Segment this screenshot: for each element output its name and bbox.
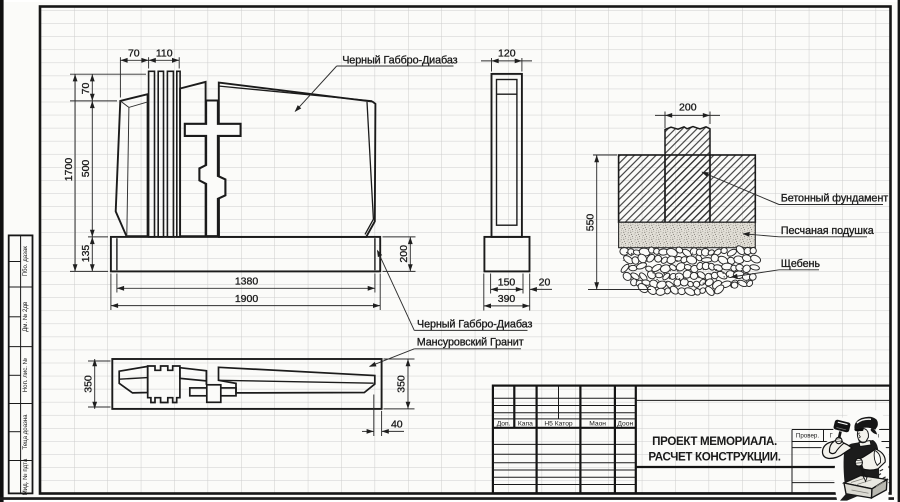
svg-text:Щебень: Щебень [781,258,821,270]
svg-text:20: 20 [539,276,551,288]
svg-text:Песчаная подушка: Песчаная подушка [781,225,874,237]
svg-text:500: 500 [80,160,92,178]
svg-text:1700: 1700 [63,158,75,182]
svg-text:Провер.: Провер. [796,433,819,440]
svg-text:550: 550 [584,214,596,232]
svg-text:350: 350 [396,375,408,393]
svg-text:150: 150 [498,276,516,288]
svg-text:Пбо. дазак: Пбо. дазак [22,246,29,277]
svg-text:Бетонный фундамент: Бетонный фундамент [781,193,888,205]
svg-text:350: 350 [82,375,94,393]
svg-text:Н5 Катор: Н5 Катор [544,420,573,427]
svg-text:Доон: Доон [617,420,633,427]
svg-text:Черный Габбро-Диабаз: Черный Габбро-Диабаз [342,55,457,67]
svg-text:ПРОЕКТ МЕМОРИАЛА.: ПРОЕКТ МЕМОРИАЛА. [652,435,777,448]
svg-text:РАСЧЕТ КОНСТРУКЦИИ.: РАСЧЕТ КОНСТРУКЦИИ. [648,451,780,464]
svg-text:Теца доазна: Теца доазна [22,414,29,450]
svg-text:Черный Габбро-Диабаз: Черный Габбро-Диабаз [417,318,532,330]
svg-text:1900: 1900 [235,293,259,305]
svg-text:Мансуровский Гранит: Мансуровский Гранит [417,337,524,349]
svg-text:200: 200 [398,245,410,263]
svg-text:Капа: Капа [518,420,533,427]
svg-text:Ноп. лис. №: Ноп. лис. № [22,358,29,392]
svg-text:1380: 1380 [235,276,259,288]
svg-text:Мид. № пдта: Мид. № пдта [22,458,29,495]
svg-text:70: 70 [128,47,140,59]
svg-text:200: 200 [679,102,697,114]
svg-text:Доп.: Доп. [497,420,511,427]
svg-text:Маон: Маон [589,420,606,427]
svg-text:40: 40 [391,418,403,430]
svg-text:Дм. № 2дв: Дм. № 2дв [22,302,29,332]
svg-text:135: 135 [80,245,92,263]
svg-text:70: 70 [80,83,92,95]
svg-text:120: 120 [498,48,516,60]
svg-text:110: 110 [156,47,173,59]
svg-text:390: 390 [498,293,516,305]
